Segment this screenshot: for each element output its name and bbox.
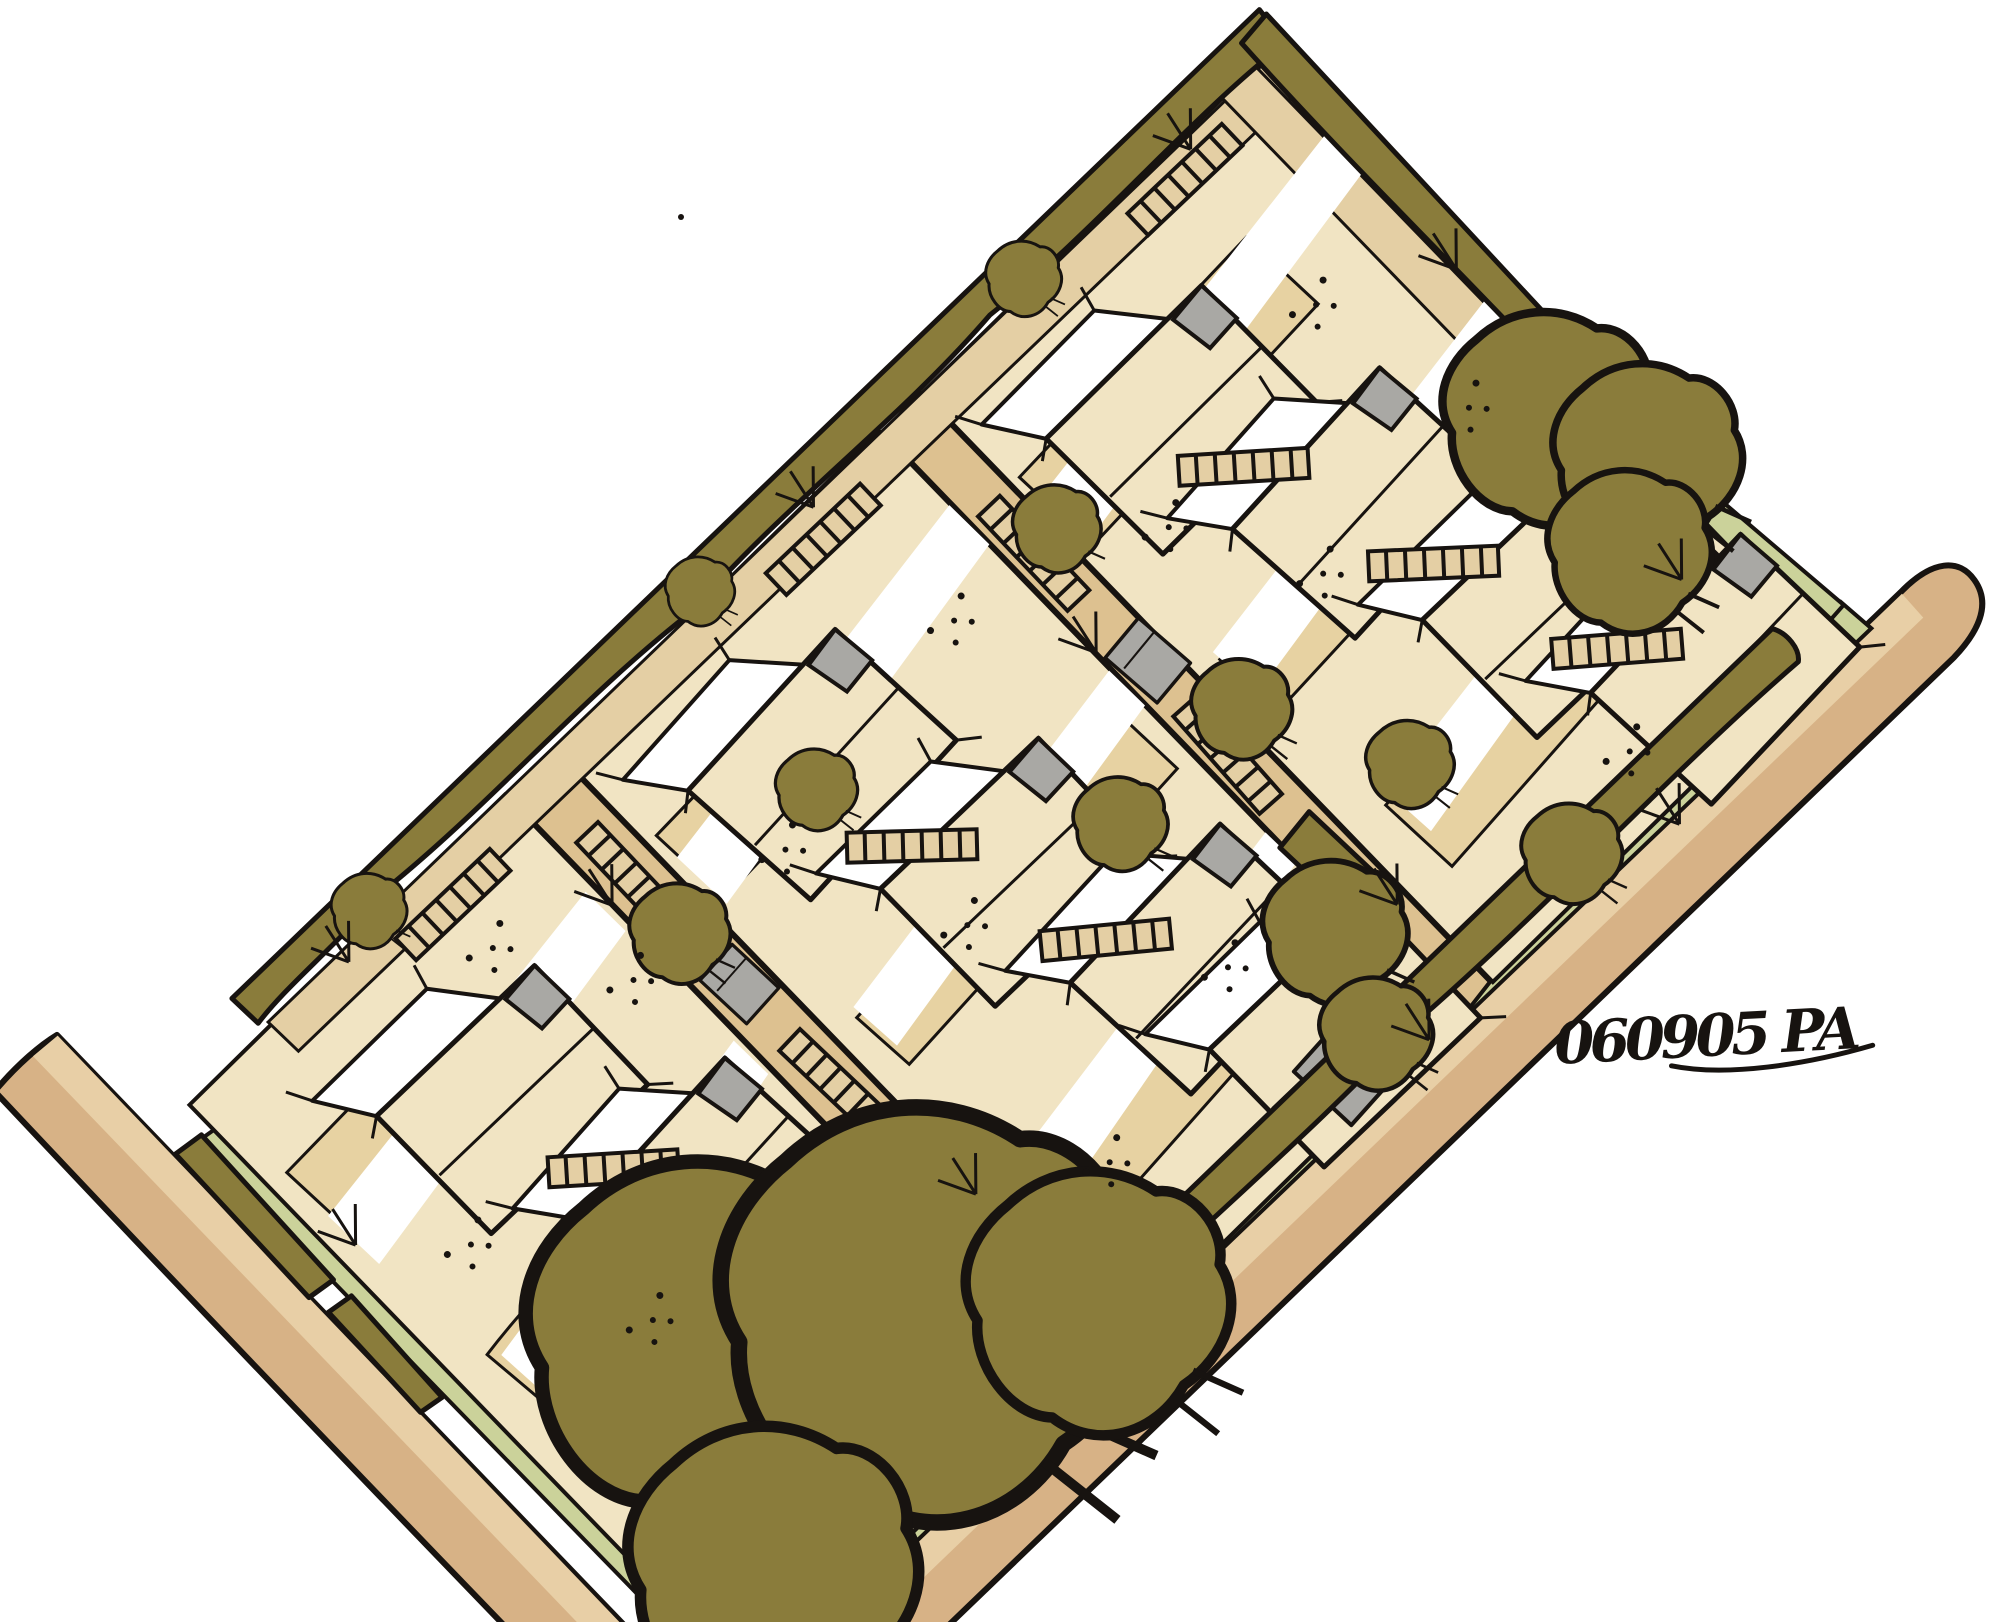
signature: 060905 PA [1552,993,1873,1079]
site-plan-sketch: 060905 PA [0,0,2000,1622]
ladder-path [1178,448,1310,486]
ladder-path [847,829,978,862]
site [0,0,2000,1622]
signature-text: 060905 PA [1552,994,1860,1078]
sketch-canvas: 060905 PA [0,0,2000,1622]
ladder-path [1368,546,1499,582]
stray-ink-mark [678,214,684,220]
